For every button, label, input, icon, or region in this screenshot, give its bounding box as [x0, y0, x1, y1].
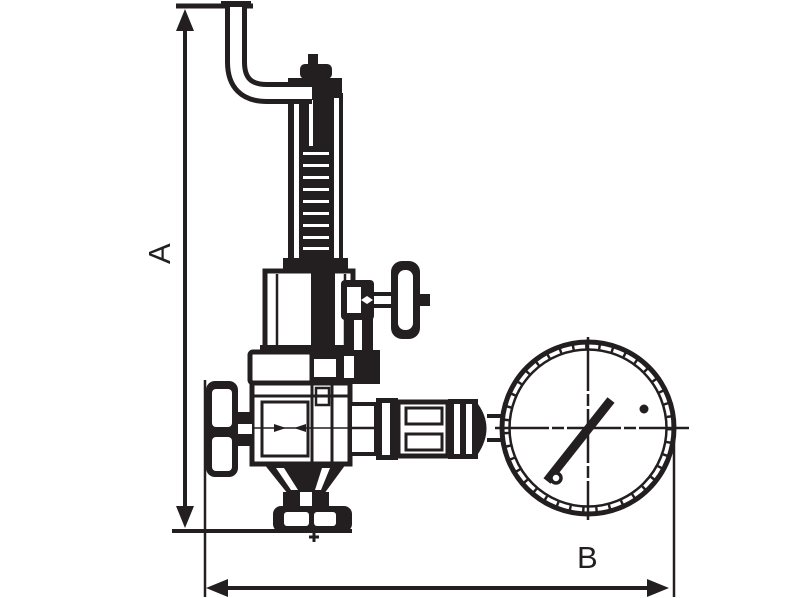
dial-marker-dot — [640, 405, 649, 414]
chamber-stem-column — [311, 271, 335, 353]
funnel-neck-bore — [300, 492, 312, 507]
t-handle-tip — [420, 294, 430, 306]
union-nut — [448, 399, 478, 459]
knob-cap — [300, 64, 332, 79]
dimension-a-label: A — [142, 243, 177, 264]
spring-chamber — [265, 271, 353, 353]
spring-housing — [283, 93, 348, 271]
bottom-flange-slot — [314, 512, 336, 526]
handwheel-opening — [212, 389, 232, 427]
t-handle-inner — [398, 270, 413, 330]
valve-body — [244, 383, 360, 464]
housing-wall-line — [334, 98, 339, 260]
flange-right — [312, 357, 338, 379]
gauge-connector — [350, 398, 510, 460]
connector-nut-slot — [382, 403, 390, 455]
dim-a-arrow-down-icon — [176, 506, 194, 528]
pressure-gauge — [495, 337, 689, 520]
handwheel — [206, 381, 252, 477]
handwheel-opening — [212, 437, 232, 471]
union-cap — [478, 404, 487, 454]
dim-b-arrow-left-icon — [206, 579, 228, 597]
outlet-elbow-block — [336, 350, 380, 384]
down-pipe-bore — [354, 320, 362, 350]
dim-a-arrow-up-icon — [176, 9, 194, 31]
dim-b-arrow-right-icon — [647, 579, 669, 597]
body-top-flange — [250, 345, 352, 383]
funnel-cone — [264, 464, 346, 494]
dimension-b-label: B — [577, 540, 598, 575]
handwheel-stem-slot — [238, 424, 252, 434]
bottom-flange-slot — [284, 512, 309, 526]
housing-wall-line — [294, 98, 299, 260]
union-slot — [454, 404, 460, 454]
test-valve-slot — [347, 287, 361, 313]
cap-knob — [300, 54, 332, 79]
valve-technical-drawing: A B — [0, 0, 800, 598]
flange-left — [250, 352, 312, 383]
union-slot — [466, 404, 472, 454]
outlet-funnel — [264, 464, 352, 542]
spindle-line — [309, 100, 313, 146]
needle-counterweight — [551, 473, 561, 483]
elbow-slot — [344, 356, 354, 378]
valve-technical-drawing-page: A B — [0, 0, 800, 598]
